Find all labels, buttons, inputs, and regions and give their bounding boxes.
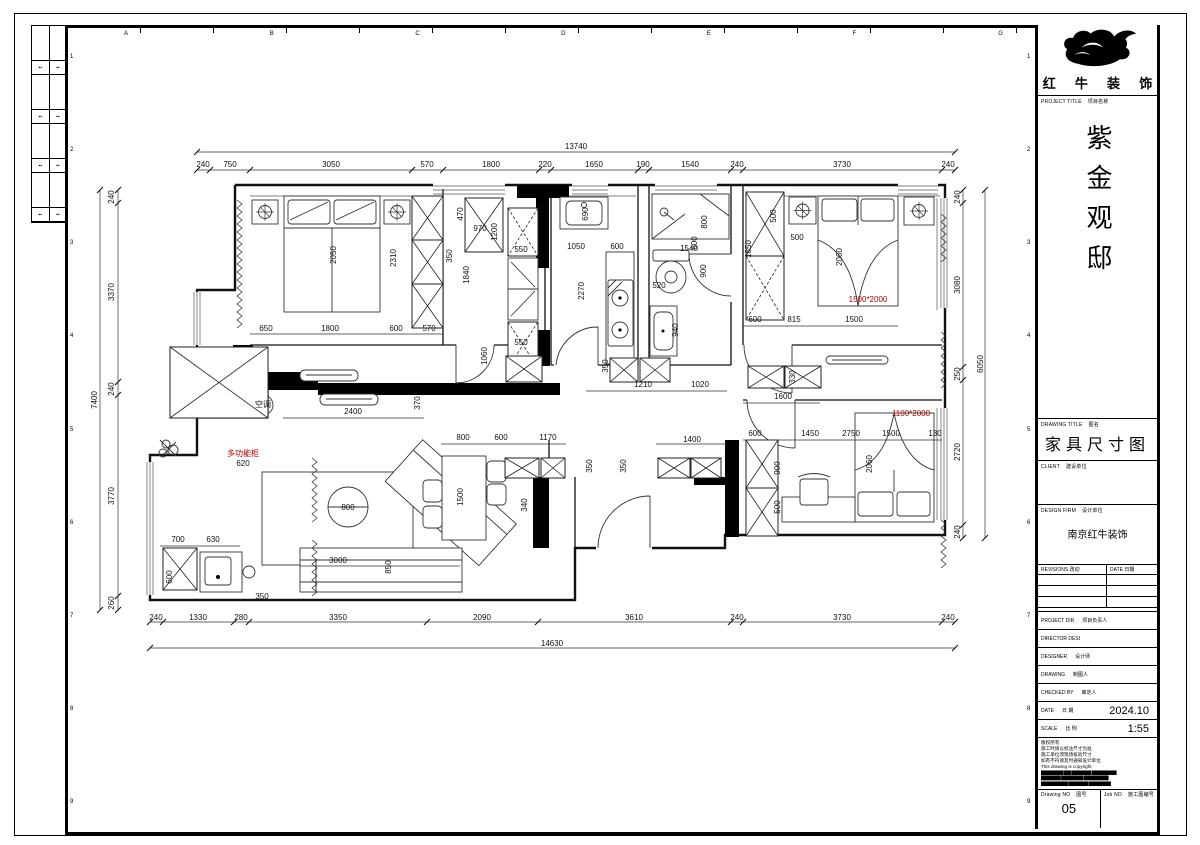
ruler-number-right-4: 4: [1027, 333, 1030, 339]
strip-mark: ▪▪: [32, 110, 50, 123]
strip-mark: ▪▪: [50, 61, 67, 74]
ruler-letter-D: D: [561, 31, 565, 37]
ruler-number-right-1: 1: [1027, 54, 1030, 60]
ruler-number-3: 3: [70, 240, 73, 246]
ruler-letter-E: E: [707, 31, 711, 37]
drawing-number-section: Drawing NO图号 05 Job NO施工图编号: [1038, 790, 1157, 828]
company-logo: 红牛装饰: [1038, 25, 1157, 96]
project-title-section: PROJECT TITLE项目名称 紫金观邸: [1038, 96, 1157, 419]
drawing-sheet: .wall{stroke:#111;stroke-width:2.4;fill:…: [0, 0, 1200, 845]
strip-mark: ▪▪: [32, 61, 50, 74]
ruler-number-8: 8: [70, 706, 73, 712]
project-name: 紫金观邸: [1079, 124, 1116, 284]
date-value: 2024.10: [1109, 705, 1149, 717]
drawing-title-section: DRAWING TITLE图名 家具尺寸图: [1038, 419, 1157, 461]
ruler-number-right-2: 2: [1027, 147, 1030, 153]
scale-row: SCALE比 例1:55: [1038, 720, 1157, 738]
title-block: 红牛装饰 PROJECT TITLE项目名称 紫金观邸 DRAWING TITL…: [1035, 25, 1157, 829]
ruler-letter-G: G: [998, 31, 1003, 37]
ruler-number-right-6: 6: [1027, 520, 1030, 526]
bull-logo-icon: [1048, 27, 1148, 71]
designer-row: DESIGNER设计师: [1038, 648, 1157, 666]
design-firm-name: 南京红牛装饰: [1038, 526, 1157, 541]
ruler-number-5: 5: [70, 427, 73, 433]
company-name: 红牛装饰: [1043, 73, 1152, 92]
copyright-notes: 版权所有 施工时请以标注尺寸为准 施工单位须现场核验尺寸 如有不符请及时通知设计…: [1038, 738, 1157, 790]
ruler-number-7: 7: [70, 613, 73, 619]
binding-strip-table: ▪▪▪▪ ▪▪▪▪ ▪▪▪▪ ▪▪▪▪: [31, 25, 67, 223]
drawing-by-row: DRAWING制图人: [1038, 666, 1157, 684]
ruler-letter-F: F: [853, 31, 857, 37]
strip-mark: ▪▪: [32, 208, 50, 221]
director-row: DIRECTOR DESI: [1038, 630, 1157, 648]
revisions-table: REVISIONS 改动 DATE 日期: [1038, 565, 1157, 612]
ruler-letter-C: C: [415, 31, 419, 37]
ruler-number-6: 6: [70, 520, 73, 526]
ruler-number-4: 4: [70, 333, 73, 339]
drawing-number: 05: [1041, 801, 1097, 816]
ruler-number-right-8: 8: [1027, 706, 1030, 712]
ruler-number-2: 2: [70, 147, 73, 153]
date-row: DATE日 期2024.10: [1038, 702, 1157, 720]
ruler-number-right-7: 7: [1027, 613, 1030, 619]
strip-mark: ▪▪: [50, 159, 67, 172]
strip-mark: ▪▪: [32, 159, 50, 172]
ruler-letter-B: B: [270, 31, 274, 37]
ruler-number-right-3: 3: [1027, 240, 1030, 246]
ruler-top-ticks: [68, 28, 1151, 33]
ruler-letter-A: A: [124, 31, 128, 37]
design-firm-section: DESIGN FIRM设计单位 南京红牛装饰: [1038, 505, 1157, 565]
scale-value: 1:55: [1128, 723, 1149, 735]
strip-mark: ▪▪: [50, 208, 67, 221]
checked-by-row: CHECKED BY审定人: [1038, 684, 1157, 702]
ruler-number-1: 1: [70, 54, 73, 60]
sheet-main-frame: [65, 25, 1160, 835]
strip-mark: ▪▪: [50, 110, 67, 123]
project-director-row: PROJECT DIR项目负责人: [1038, 612, 1157, 630]
ruler-number-right-5: 5: [1027, 427, 1030, 433]
ruler-number-right-9: 9: [1027, 799, 1030, 805]
ruler-number-9: 9: [70, 799, 73, 805]
client-section: CLIENT建设单位: [1038, 461, 1157, 505]
drawing-title: 家具尺寸图: [1038, 431, 1157, 455]
